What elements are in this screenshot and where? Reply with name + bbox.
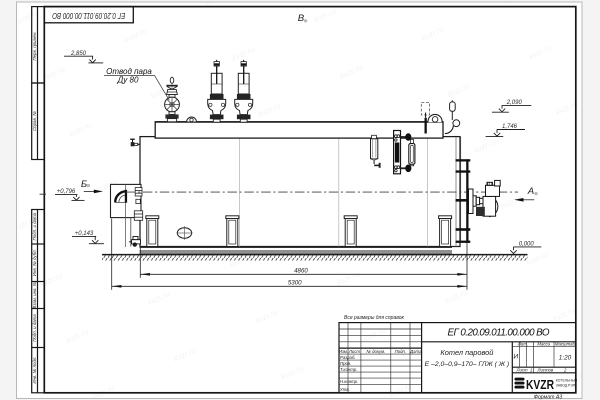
svg-text:Т.контр.: Т.контр.: [340, 367, 357, 372]
svg-text:KVZR: KVZR: [526, 378, 554, 392]
svg-text:Изм.: Изм.: [339, 349, 348, 354]
svg-text:ЕГ 0.20.09.011.00.000 ВО: ЕГ 0.20.09.011.00.000 ВО: [52, 11, 125, 20]
svg-text:Подп. и дата: Подп. и дата: [32, 212, 37, 240]
svg-text:А: А: [527, 186, 534, 197]
svg-text:ЕГ 0.20.09.011.00.000 ВО: ЕГ 0.20.09.011.00.000 ВО: [448, 327, 550, 338]
svg-text:Разраб.: Разраб.: [340, 355, 356, 360]
svg-text:Подп.: Подп.: [395, 349, 406, 354]
svg-text:+0,143: +0,143: [75, 231, 94, 237]
svg-text:Подп. и дата: Подп. и дата: [32, 314, 37, 342]
svg-text:Пров.: Пров.: [340, 361, 351, 366]
svg-text:КОТЕЛЬНЫЙ: КОТЕЛЬНЫЙ: [556, 379, 578, 383]
svg-text:Е –2,0–0,9–170– ГЛЖ ( Ж ): Е –2,0–0,9–170– ГЛЖ ( Ж ): [425, 361, 509, 368]
svg-text:Н.контр.: Н.контр.: [340, 379, 358, 384]
svg-text:Все размеры для справок: Все размеры для справок: [344, 315, 405, 321]
svg-text:2,850: 2,850: [70, 51, 87, 57]
svg-text:Лит.: Лит.: [517, 341, 528, 346]
svg-text:И: И: [514, 354, 519, 361]
svg-text:Лист: Лист: [516, 367, 528, 372]
svg-text:Справ. №: Справ. №: [32, 111, 37, 131]
svg-text:+0,796: +0,796: [57, 189, 76, 195]
svg-text:0,000: 0,000: [519, 242, 535, 248]
svg-text:ЗАВОД РЭП: ЗАВОД РЭП: [556, 383, 576, 387]
svg-text:Масштаб: Масштаб: [555, 341, 576, 346]
svg-text:2,090: 2,090: [506, 100, 523, 106]
svg-text:В: В: [298, 13, 305, 24]
svg-text:Формат А3: Формат А3: [534, 395, 562, 400]
svg-text:№ докум.: № докум.: [366, 349, 385, 354]
svg-text:Инв. № подл.: Инв. № подл.: [32, 356, 37, 383]
svg-text:Масса: Масса: [537, 341, 550, 346]
svg-text:1,746: 1,746: [502, 124, 518, 130]
svg-text:Листов: Листов: [537, 367, 554, 372]
svg-text:Взам. инв. №: Взам. инв. №: [32, 281, 37, 308]
svg-text:4860: 4860: [294, 267, 308, 274]
svg-text:Дата: Дата: [409, 349, 422, 354]
svg-text:Утв.: Утв.: [340, 387, 350, 392]
svg-text:1:20: 1:20: [559, 355, 572, 362]
svg-text:5300: 5300: [288, 279, 302, 286]
svg-text:Инв. № дубл.: Инв. № дубл.: [32, 249, 37, 276]
svg-text:Лист: Лист: [348, 349, 360, 354]
svg-text:Котел паровой: Котел паровой: [440, 348, 493, 357]
svg-text:Перв. примен.: Перв. примен.: [32, 31, 37, 60]
svg-text:Б: Б: [81, 179, 87, 190]
svg-text:Ду 80: Ду 80: [117, 76, 139, 85]
